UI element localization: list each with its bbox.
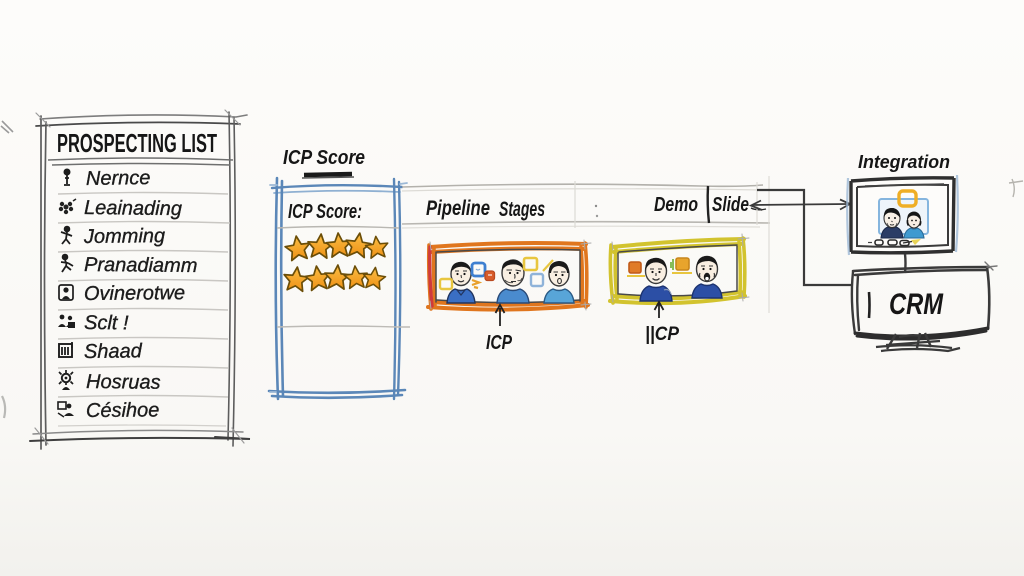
svg-text:Slide: Slide <box>712 194 749 216</box>
svg-text:Shaad: Shaad <box>84 340 143 363</box>
svg-text:Ovinerotwe: Ovinerotwe <box>84 282 185 305</box>
svg-text:Pipeline: Pipeline <box>426 197 490 220</box>
svg-text:||CP: ||CP <box>645 324 679 345</box>
svg-text:Demo: Demo <box>654 194 698 216</box>
svg-text:Jomming: Jomming <box>83 225 165 248</box>
svg-text:ICP Score: ICP Score <box>283 147 365 169</box>
svg-text:ICP Score:: ICP Score: <box>288 201 362 223</box>
svg-text:Stages: Stages <box>499 198 545 221</box>
svg-text:Sclt !: Sclt ! <box>84 312 129 334</box>
svg-text:Leainading: Leainading <box>84 197 182 220</box>
svg-text:Nernce: Nernce <box>86 167 151 190</box>
svg-text:Hosruas: Hosruas <box>86 371 161 394</box>
svg-text:CRM: CRM <box>889 288 944 321</box>
svg-text:ICP: ICP <box>486 332 513 354</box>
svg-text:Integration: Integration <box>858 152 950 172</box>
svg-text:Césihoe: Césihoe <box>86 399 160 422</box>
svg-text:PROSPECTING LIST: PROSPECTING LIST <box>57 128 217 158</box>
svg-text:Pranadiamm: Pranadiamm <box>84 254 198 277</box>
